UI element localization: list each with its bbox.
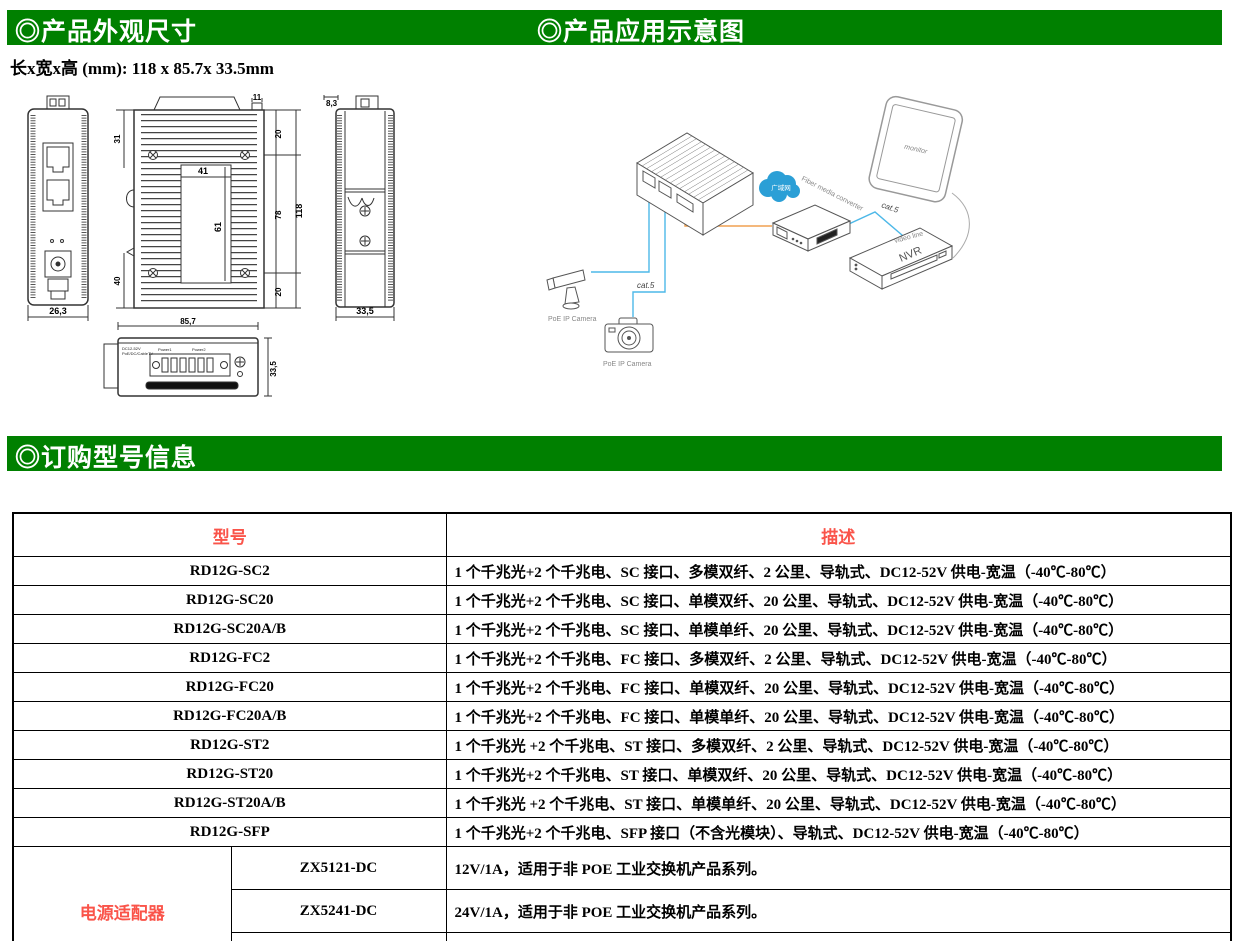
- model-cell: ZX5121-DC: [231, 847, 446, 890]
- section-title-ordering: ◎订购型号信息: [15, 438, 197, 474]
- dim-side-top: 8,3: [326, 99, 338, 108]
- dim-right-top: 20: [274, 129, 283, 138]
- table-header-row: 型号 描述: [13, 513, 1231, 557]
- table-row: RD12G-ST21 个千兆光 +2 个千兆电、ST 接口、多模双纤、2 公里、…: [13, 731, 1231, 760]
- side-view-drawing: 8,3 33,5: [318, 93, 410, 328]
- wan-cloud: 广域网: [759, 171, 800, 202]
- cat5-label-nvr: cat.5: [880, 200, 900, 215]
- din-clip-top: [154, 97, 240, 110]
- cat5-line-camera1: [591, 185, 649, 272]
- led-indicator-1: [51, 240, 54, 243]
- table-row: RD12G-SFP1 个千兆光+2 个千兆电、SFP 接口（不含光模块）、导轨式…: [13, 818, 1231, 847]
- overall-dimensions-note: 长x宽x高 (mm): 118 x 85.7x 33.5mm: [10, 54, 274, 79]
- section-header-bar-ordering: ◎订购型号信息: [7, 436, 1222, 471]
- dim-left-bottom: 40: [113, 276, 122, 285]
- description-cell: 1 个千兆光+2 个千兆电、SFP 接口（不含光模块）、导轨式、DC12-52V…: [446, 818, 1231, 847]
- table-row: RD12G-FC201 个千兆光+2 个千兆电、FC 接口、单模双纤、20 公里…: [13, 673, 1231, 702]
- dim-bottom-width: 85,7: [180, 317, 196, 326]
- model-cell: RD12G-FC20A/B: [13, 702, 446, 731]
- table-row: RD12G-FC21 个千兆光+2 个千兆电、FC 接口、多模双纤、2 公里、导…: [13, 644, 1231, 673]
- dim-inner-height: 61: [213, 222, 223, 232]
- rj45-port-1: [47, 147, 69, 172]
- dim-front-width: 26,3: [49, 306, 67, 316]
- application-diagram: 广域网 Fiber media converter monitor N: [525, 88, 1015, 388]
- model-cell: RD12G-SC2: [13, 557, 446, 586]
- section-header-bar-top: ◎产品外观尺寸 ◎产品应用示意图: [7, 10, 1222, 45]
- dim-right-bottom: 20: [274, 287, 283, 296]
- table-row: RD12G-ST20A/B1 个千兆光 +2 个千兆电、ST 接口、单模单纤、2…: [13, 789, 1231, 818]
- dim-inner-width: 41: [198, 166, 208, 176]
- section-title-application: ◎产品应用示意图: [537, 12, 745, 48]
- description-cell: 1 个千兆光+2 个千兆电、SC 接口、多模双纤、2 公里、导轨式、DC12-5…: [446, 557, 1231, 586]
- ordering-table: 型号 描述 RD12G-SC21 个千兆光+2 个千兆电、SC 接口、多模双纤、…: [12, 512, 1232, 941]
- datasheet-page: ◎产品外观尺寸 ◎产品应用示意图 长x宽x高 (mm): 118 x 85.7x…: [0, 0, 1242, 941]
- description-cell: 1 个千兆光+2 个千兆电、SC 接口、单模双纤、20 公里、导轨式、DC12-…: [446, 586, 1231, 615]
- table-row: RD12G-SC201 个千兆光+2 个千兆电、SC 接口、单模双纤、20 公里…: [13, 586, 1231, 615]
- led-indicator-2: [61, 240, 64, 243]
- wan-cloud-label: 广域网: [771, 183, 791, 192]
- vent-slot: [146, 382, 238, 389]
- din-rail-area: [181, 165, 231, 283]
- rear-view-drawing: 11 41 61 31 40 20 78 20 118: [106, 93, 310, 328]
- power1-label: Power1: [158, 347, 172, 352]
- description-cell: 12V/1A，适用于非 POE 工业交换机产品系列。: [446, 847, 1231, 890]
- bottom-left-cap: [104, 344, 118, 388]
- din-clip-profile: [348, 197, 374, 206]
- camera1-label: PoE IP Camera: [548, 316, 597, 323]
- column-header-description: 描述: [446, 513, 1231, 557]
- front-view-drawing: 26,3: [14, 93, 110, 328]
- bottom-view-drawing: 85,7 33,5 DC12-52V PoE/DC/CableTV Power1…: [100, 316, 390, 416]
- dim-left-top: 31: [113, 134, 122, 143]
- power2-label: Power2: [192, 347, 206, 352]
- column-header-model: 型号: [13, 513, 446, 557]
- model-cell: ZX5241-DC: [231, 890, 446, 933]
- video-line-curve: [952, 193, 969, 258]
- description-cell: 52V/1A，适用于 1 端口内 POE 供电和非 POE 工业交换机产品系列: [446, 933, 1231, 941]
- model-cell: RD12G-SC20: [13, 586, 446, 615]
- model-cell: ZX5521-DC: [231, 933, 446, 941]
- description-cell: 1 个千兆光+2 个千兆电、FC 接口、单模单纤、20 公里、导轨式、DC12-…: [446, 702, 1231, 731]
- model-cell: RD12G-ST20: [13, 760, 446, 789]
- fiber-media-converter: [773, 205, 850, 251]
- power-print-line2: PoE/DC/CableTV: [122, 351, 153, 356]
- model-cell: RD12G-SC20A/B: [13, 615, 446, 644]
- dim-total-height: 118: [294, 204, 304, 219]
- section-title-appearance: ◎产品外观尺寸: [15, 12, 197, 48]
- description-cell: 1 个千兆光+2 个千兆电、ST 接口、单模双纤、20 公里、导轨式、DC12-…: [446, 760, 1231, 789]
- camera2-label: PoE IP Camera: [603, 361, 652, 368]
- dim-top-tab: 11: [253, 93, 262, 102]
- industrial-switch: [637, 133, 753, 235]
- model-cell: RD12G-FC2: [13, 644, 446, 673]
- monitor: monitor: [867, 95, 964, 204]
- cat5-label-camera: cat.5: [637, 281, 655, 290]
- description-cell: 1 个千兆光+2 个千兆电、FC 接口、单模双纤、20 公里、导轨式、DC12-…: [446, 673, 1231, 702]
- description-cell: 1 个千兆光 +2 个千兆电、ST 接口、多模双纤、2 公里、导轨式、DC12-…: [446, 731, 1231, 760]
- ip-camera: [605, 318, 653, 352]
- front-body: [28, 109, 88, 305]
- model-cell: RD12G-ST20A/B: [13, 789, 446, 818]
- power-adapter-group-label: 电源适配器: [13, 847, 231, 941]
- table-row: RD12G-SC21 个千兆光+2 个千兆电、SC 接口、多模双纤、2 公里、导…: [13, 557, 1231, 586]
- model-cell: RD12G-SFP: [13, 818, 446, 847]
- description-cell: 24V/1A，适用于非 POE 工业交换机产品系列。: [446, 890, 1231, 933]
- table-row: RD12G-SC20A/B1 个千兆光+2 个千兆电、SC 接口、单模单纤、20…: [13, 615, 1231, 644]
- rj45-port-2: [47, 180, 69, 205]
- model-cell: RD12G-FC20: [13, 673, 446, 702]
- dim-side-width: 33,5: [356, 306, 374, 316]
- model-cell: RD12G-ST2: [13, 731, 446, 760]
- table-row: RD12G-ST201 个千兆光+2 个千兆电、ST 接口、单模双纤、20 公里…: [13, 760, 1231, 789]
- description-cell: 1 个千兆光+2 个千兆电、SC 接口、单模单纤、20 公里、导轨式、DC12-…: [446, 615, 1231, 644]
- description-cell: 1 个千兆光+2 个千兆电、FC 接口、多模双纤、2 公里、导轨式、DC12-5…: [446, 644, 1231, 673]
- dim-bottom-height: 33,5: [269, 361, 278, 377]
- table-row: RD12G-FC20A/B1 个千兆光+2 个千兆电、FC 接口、单模单纤、20…: [13, 702, 1231, 731]
- din-hook: [127, 190, 135, 207]
- cctv-camera: [547, 270, 585, 309]
- power-adapter-row: 电源适配器 ZX5121-DC 12V/1A，适用于非 POE 工业交换机产品系…: [13, 847, 1231, 890]
- description-cell: 1 个千兆光 +2 个千兆电、ST 接口、单模单纤、20 公里、导轨式、DC12…: [446, 789, 1231, 818]
- dim-right-mid: 78: [274, 210, 283, 219]
